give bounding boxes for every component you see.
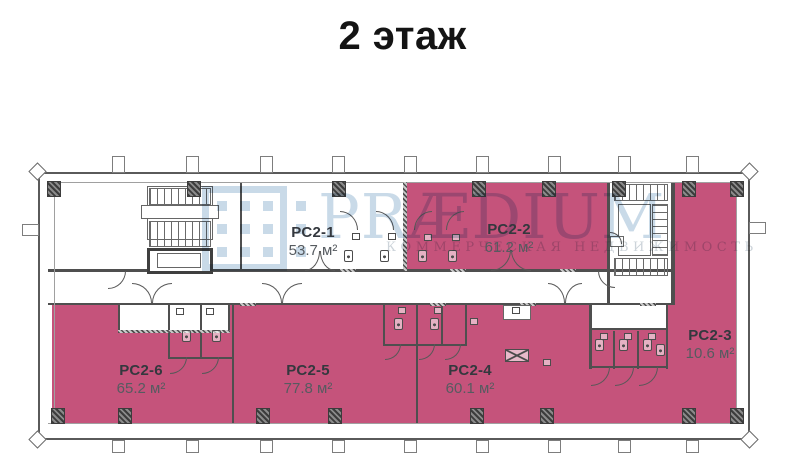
wc-lobby — [591, 305, 666, 328]
column — [333, 182, 345, 196]
toilet-fixture — [344, 250, 353, 262]
wall-hatch — [240, 303, 256, 306]
toilet-fixture — [182, 330, 191, 342]
wall-fixture — [388, 233, 396, 240]
wall-fixture — [352, 233, 360, 240]
floor-title: 2 этаж — [0, 14, 805, 59]
wall-fixture — [398, 307, 406, 314]
column — [257, 409, 269, 423]
column-stub — [749, 222, 766, 234]
wall-fixture — [452, 234, 460, 241]
wall — [383, 305, 385, 346]
wall — [54, 182, 55, 424]
equipment-box — [505, 349, 529, 362]
wall-fixture — [600, 333, 608, 340]
column — [119, 409, 131, 423]
wall — [228, 305, 230, 332]
room-id: PC2-5 — [284, 362, 333, 380]
wall-fixture — [424, 234, 432, 241]
column — [52, 409, 64, 423]
wall — [48, 182, 740, 183]
column — [731, 409, 743, 423]
wall — [666, 305, 668, 369]
column — [473, 182, 485, 196]
wall-hatch — [340, 269, 356, 272]
stair-landing — [141, 205, 219, 219]
room-area: 60.1 м² — [446, 380, 495, 398]
room-id: PC2-4 — [446, 362, 495, 380]
toilet-fixture — [418, 250, 427, 262]
column-stub — [332, 156, 345, 173]
wall — [637, 331, 639, 369]
wall — [240, 182, 242, 270]
column-stub — [332, 440, 345, 453]
column — [471, 409, 483, 423]
column-stub — [260, 156, 273, 173]
room-label-pc2-4: PC2-4 60.1 м² — [446, 362, 495, 398]
toilet-fixture — [448, 250, 457, 262]
room-id: PC2-6 — [117, 362, 166, 380]
column-stub — [112, 440, 125, 453]
column-stub — [686, 156, 699, 173]
column — [613, 182, 625, 196]
wall-fixture — [206, 308, 214, 315]
column-stub — [548, 156, 561, 173]
elevator-car — [157, 253, 201, 268]
stair-risers — [614, 258, 668, 276]
toilet-fixture — [595, 339, 604, 351]
toilet-fixture — [656, 344, 665, 356]
floor-plan-page: 2 этаж PRÆDIUM КОММЕРЧЕСКАЯ НЕДВИЖИМОСТЬ… — [0, 0, 805, 454]
room-label-pc2-1: PC2-1 53.7 м² — [289, 224, 338, 260]
room-id: PC2-1 — [289, 224, 338, 242]
wall-fixture — [176, 308, 184, 315]
wall — [671, 182, 675, 305]
toilet-fixture — [212, 330, 221, 342]
wall-fixture — [543, 359, 551, 366]
column-stub — [260, 440, 273, 453]
toilet-fixture — [643, 339, 652, 351]
column-stub — [476, 156, 489, 173]
room-area: 65.2 м² — [117, 380, 166, 398]
toilet-fixture — [619, 339, 628, 351]
column-stub — [618, 440, 631, 453]
column-stub — [618, 156, 631, 173]
wall — [589, 305, 592, 369]
wall-fixture — [648, 333, 656, 340]
wall-fixture — [624, 333, 632, 340]
column-stub — [404, 156, 417, 173]
room-label-pc2-5: PC2-5 77.8 м² — [284, 362, 333, 398]
room-id: PC2-3 — [686, 327, 735, 345]
room-area: 10.6 м² — [686, 345, 735, 363]
wall-hatch — [640, 303, 656, 306]
wall — [118, 305, 120, 332]
column — [188, 182, 200, 196]
room-area: 77.8 м² — [284, 380, 333, 398]
column-stub — [112, 156, 125, 173]
wall-fixture — [470, 318, 478, 325]
wall-hatch — [403, 182, 407, 271]
stair-landing — [618, 204, 651, 256]
wall — [736, 182, 737, 424]
wall — [465, 305, 467, 346]
wall — [416, 305, 418, 424]
room-label-pc2-3: PC2-3 10.6 м² — [686, 327, 735, 363]
column-stub — [548, 440, 561, 453]
column-stub — [686, 440, 699, 453]
room-area: 61.2 м² — [485, 239, 534, 257]
toilet-fixture — [394, 318, 403, 330]
wall — [48, 423, 740, 424]
wall-fixture — [434, 307, 442, 314]
wall — [613, 331, 615, 369]
column-stub — [476, 440, 489, 453]
room-label-pc2-2: PC2-2 61.2 м² — [485, 221, 534, 257]
toilet-fixture — [430, 318, 439, 330]
wall-hatch — [560, 269, 576, 272]
column — [329, 409, 341, 423]
column-stub — [22, 224, 39, 236]
toilet-fixture — [380, 250, 389, 262]
column — [48, 182, 60, 196]
column-stub — [404, 440, 417, 453]
room-id: PC2-2 — [485, 221, 534, 239]
column — [683, 182, 695, 196]
column-stub — [186, 156, 199, 173]
wall — [589, 328, 668, 330]
column-stub — [186, 440, 199, 453]
column — [543, 182, 555, 196]
room-label-pc2-6: PC2-6 65.2 м² — [117, 362, 166, 398]
column — [683, 409, 695, 423]
stair-risers — [652, 204, 668, 256]
column — [541, 409, 553, 423]
wall — [48, 269, 675, 272]
wall-fixture — [512, 307, 520, 314]
wall-hatch — [430, 303, 446, 306]
wall-hatch — [450, 269, 466, 272]
column — [731, 182, 743, 196]
wall — [232, 305, 234, 424]
room-area: 53.7 м² — [289, 242, 338, 260]
